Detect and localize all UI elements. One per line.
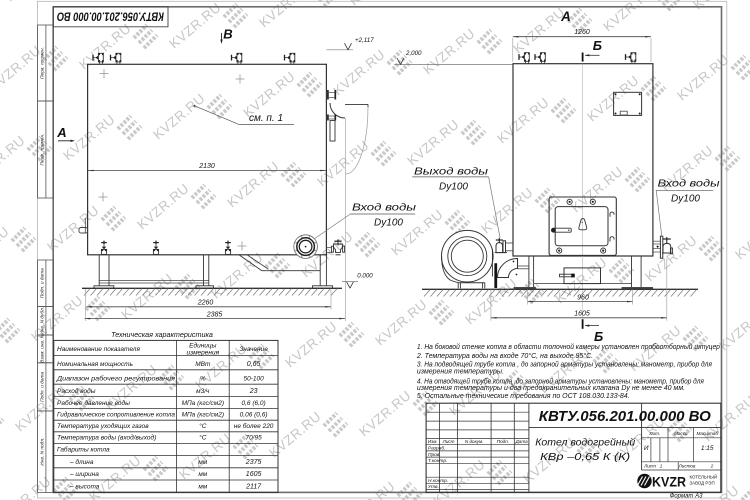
svg-text:Температура воды (вход/выход): Температура воды (вход/выход): [57, 434, 156, 442]
svg-text:МВт: МВт: [195, 361, 211, 368]
svg-text:Изм.: Изм.: [428, 439, 438, 444]
svg-text:°С: °С: [199, 422, 207, 430]
svg-text:2385: 2385: [206, 311, 223, 318]
svg-text:Dy100: Dy100: [439, 182, 468, 193]
svg-text:Разраб.: Разраб.: [428, 446, 445, 452]
svg-text:°С: °С: [199, 434, 207, 442]
svg-text:2130: 2130: [198, 163, 215, 170]
svg-text:%: %: [200, 375, 206, 382]
svg-text:Утв.: Утв.: [428, 484, 439, 490]
svg-text:Диапазон рабочего регулировани: Диапазон рабочего регулирования: [56, 374, 176, 382]
svg-text:Габариты котла: Габариты котла: [57, 446, 110, 454]
svg-text:+2,117: +2,117: [355, 37, 374, 44]
svg-text:мм: мм: [198, 471, 207, 478]
svg-text:KVZR: KVZR: [652, 473, 686, 489]
svg-text:Б: Б: [594, 329, 603, 344]
svg-text:мм: мм: [198, 484, 207, 491]
svg-text:5. Остальные технические треб: 5. Остальные технические требования по О…: [417, 392, 630, 400]
svg-text:Лит.: Лит.: [648, 431, 660, 436]
svg-text:Значение: Значение: [239, 346, 268, 353]
svg-text:Масштаб: Масштаб: [696, 431, 718, 436]
svg-text:Лист: Лист: [442, 439, 455, 444]
svg-text:2,000: 2,000: [405, 50, 422, 57]
svg-text:2260: 2260: [197, 300, 214, 307]
svg-text:960: 960: [577, 294, 589, 301]
svg-text:Листов: Листов: [678, 464, 696, 469]
svg-text:Подп. и дата: Подп. и дата: [40, 372, 46, 402]
svg-text:Подп.: Подп.: [497, 439, 509, 444]
svg-text:не более 220: не более 220: [234, 422, 274, 430]
svg-text:Техническая характеристика: Техническая характеристика: [111, 330, 213, 339]
svg-text:измерения: измерения: [187, 350, 220, 357]
svg-text:– высота: – высота: [69, 484, 100, 491]
svg-text:см. п. 1: см. п. 1: [249, 113, 283, 124]
svg-text:Формат А3: Формат А3: [670, 493, 703, 499]
svg-text:Номинальная мощность: Номинальная мощность: [57, 361, 134, 368]
svg-text:0,65: 0,65: [247, 361, 261, 368]
svg-text:0,06 (0,6): 0,06 (0,6): [240, 411, 268, 418]
svg-text:50-100: 50-100: [243, 375, 264, 382]
svg-text:Единицы: Единицы: [189, 342, 216, 350]
svg-text:Котел водогрейный: Котел водогрейный: [535, 436, 635, 448]
svg-text:Дата: Дата: [515, 439, 529, 444]
svg-text:Температура уходящих газов: Температура уходящих газов: [57, 422, 149, 430]
svg-text:0,6 (6,0): 0,6 (6,0): [241, 400, 265, 407]
svg-text:Н.контр.: Н.контр.: [428, 478, 448, 484]
svg-text:3. На подводящей трубе котла: 3. На подводящей трубе котла , до запорн…: [417, 361, 712, 369]
svg-text:Наименование показателя: Наименование показателя: [57, 346, 140, 353]
svg-text:КВТУ.056.201.00.000 ВО: КВТУ.056.201.00.000 ВО: [57, 9, 164, 21]
svg-text:1: 1: [660, 464, 663, 469]
svg-text:Инв. N дубл.: Инв. N дубл.: [40, 307, 46, 335]
svg-text:0.000: 0.000: [357, 272, 373, 279]
svg-text:МПа (кгс/см2): МПа (кгс/см2): [182, 400, 224, 407]
svg-text:КВТУ.056.201.00.000 ВО: КВТУ.056.201.00.000 ВО: [539, 408, 711, 425]
svg-text:Б: Б: [593, 38, 602, 53]
svg-text:1605: 1605: [574, 310, 590, 317]
svg-text:Выход воды: Выход воды: [414, 165, 488, 177]
svg-text:Инв. N подл.: Инв. N подл.: [40, 438, 46, 466]
svg-text:Dy100: Dy100: [671, 194, 700, 205]
svg-text:N докум.: N докум.: [465, 439, 484, 444]
svg-text:Вход воды: Вход воды: [352, 201, 416, 213]
svg-text:4. На отводящей трубе котла ,: 4. На отводящей трубе котла ,до запорной…: [417, 377, 704, 385]
svg-text:ЗАВОД РЭП: ЗАВОД РЭП: [690, 480, 715, 485]
svg-text:А: А: [560, 9, 571, 24]
svg-text:КВр –0,65 К (К): КВр –0,65 К (К): [540, 451, 630, 463]
svg-text:1605: 1605: [246, 471, 262, 478]
svg-text:измерения температуры.: измерения температуры.: [417, 369, 504, 376]
svg-text:23: 23: [249, 388, 258, 395]
svg-text:Dy100: Dy100: [374, 218, 403, 229]
svg-text:2375: 2375: [245, 459, 262, 466]
svg-text:1. На боковой стенке котла в: 1. На боковой стенке котла в области топ…: [417, 343, 720, 351]
svg-text:КОТЕЛЬНЫЙ: КОТЕЛЬНЫЙ: [690, 474, 718, 479]
svg-text:1260: 1260: [574, 29, 590, 36]
svg-text:Взам. инв. N: Взам. инв. N: [40, 334, 46, 362]
svg-text:2: 2: [710, 464, 714, 469]
svg-text:измерения температуры и два пр: измерения температуры и два предохраните…: [417, 384, 685, 392]
svg-text:В: В: [223, 26, 232, 41]
svg-text:– ширина: – ширина: [69, 471, 99, 478]
svg-text:Лист: Лист: [643, 464, 656, 469]
svg-text:2117: 2117: [245, 484, 262, 491]
svg-text:Расход воды: Расход воды: [57, 387, 96, 395]
svg-text:МПа (кгс/см2): МПа (кгс/см2): [182, 411, 224, 418]
svg-text:Перв. примен.: Перв. примен.: [40, 134, 46, 166]
svg-text:Масса: Масса: [674, 431, 688, 436]
svg-text:Рабочее давление воды: Рабочее давление воды: [57, 399, 130, 407]
svg-text:Гидравлическое сопротивление к: Гидравлическое сопротивление котла: [57, 410, 175, 418]
svg-text:2. Температура воды на входе: 2. Температура воды на входе 70°С, на вы…: [416, 352, 593, 360]
svg-text:1:15: 1:15: [701, 445, 714, 452]
svg-text:– длина: – длина: [69, 458, 94, 466]
svg-text:м3/ч: м3/ч: [196, 388, 210, 395]
svg-text:Вход воды: Вход воды: [658, 177, 720, 189]
svg-text:70/95: 70/95: [245, 435, 262, 442]
svg-text:А: А: [56, 125, 66, 140]
svg-text:мм: мм: [198, 459, 207, 466]
svg-text:Т.контр.: Т.контр.: [428, 458, 447, 464]
svg-text:Пров.: Пров.: [428, 452, 441, 458]
svg-text:И: И: [644, 445, 649, 452]
svg-text:Перв. примен.: Перв. примен.: [40, 47, 46, 79]
svg-text:Подп. и дата: Подп. и дата: [40, 268, 46, 298]
